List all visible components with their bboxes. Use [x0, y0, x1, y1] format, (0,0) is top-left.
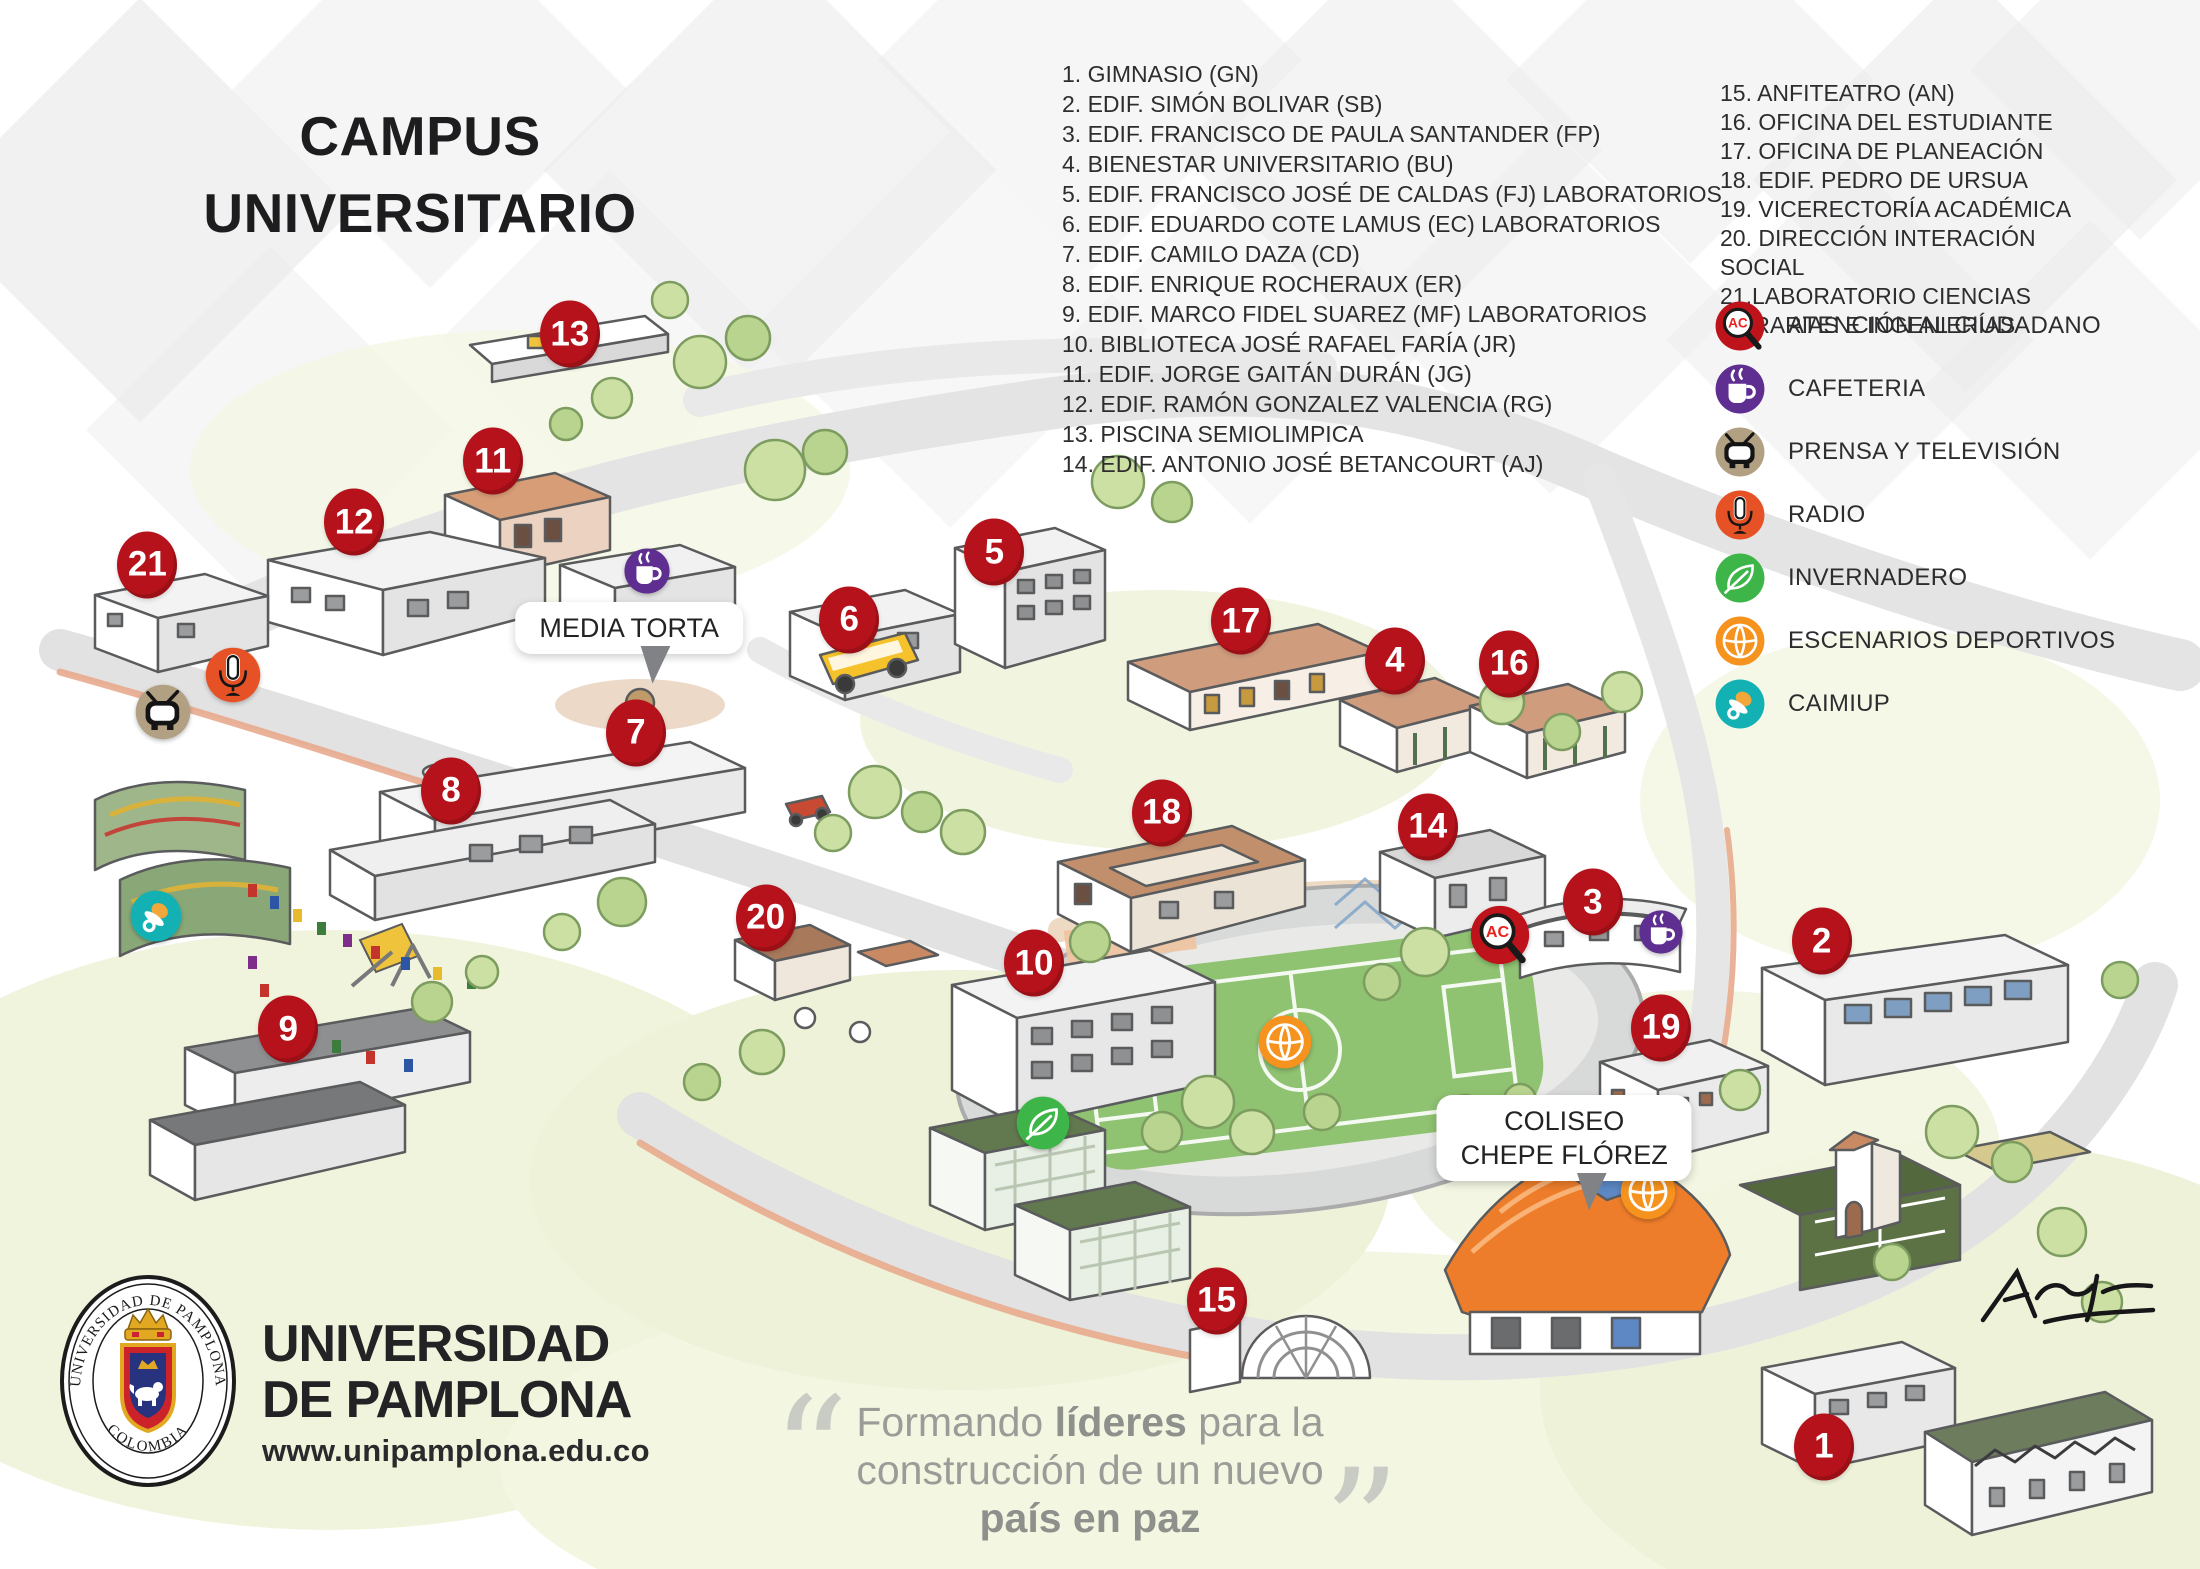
slogan-quote: “ Formando líderes para la construcción …: [800, 1398, 1380, 1542]
marker-number: 4: [1385, 641, 1404, 681]
wordmark-line1: UNIVERSIDAD: [262, 1316, 650, 1372]
artist-signature: [1975, 1258, 2165, 1338]
marker-number: 5: [985, 532, 1004, 572]
map-marker-6: 6: [819, 586, 879, 653]
map-marker-20: 20: [736, 884, 796, 951]
open-quote-mark: “: [772, 1378, 849, 1528]
marker-number: 12: [335, 502, 374, 542]
quote-line1: Formando líderes para la: [800, 1398, 1380, 1446]
marker-number: 6: [839, 600, 858, 640]
map-marker-4: 4: [1365, 627, 1425, 694]
map-marker-10: 10: [1004, 930, 1064, 997]
map-marker-16: 16: [1479, 630, 1539, 697]
map-marker-5: 5: [964, 519, 1024, 586]
marker-number: 9: [278, 1009, 297, 1049]
media-torta-label: MEDIA TORTA: [515, 602, 743, 654]
map-marker-17: 17: [1211, 588, 1271, 655]
marker-number: 1: [1814, 1427, 1833, 1467]
map-marker-15: 15: [1187, 1267, 1247, 1334]
map-marker-12: 12: [324, 489, 384, 556]
map-marker-19: 19: [1631, 994, 1691, 1061]
marker-number: 17: [1221, 601, 1260, 641]
map-marker-3: 3: [1563, 869, 1623, 936]
marker-number: 19: [1642, 1008, 1681, 1048]
marker-number: 2: [1812, 921, 1831, 961]
map-marker-11: 11: [463, 428, 523, 495]
marker-number: 18: [1142, 793, 1181, 833]
marker-number: 14: [1408, 807, 1447, 847]
map-marker-14: 14: [1398, 793, 1458, 860]
marker-number: 11: [474, 441, 511, 481]
university-seal: UNIVERSIDAD DE PAMPLONA COLOMBIA: [58, 1272, 238, 1490]
marker-number: 10: [1015, 943, 1054, 983]
map-marker-18: 18: [1132, 779, 1192, 846]
marker-number: 3: [1583, 882, 1602, 922]
marker-number: 15: [1197, 1281, 1236, 1321]
map-marker-8: 8: [421, 757, 481, 824]
campus-map-poster: CAMPUS UNIVERSITARIO 1. GIMNASIO (GN)2. …: [0, 0, 2200, 1569]
map-marker-2: 2: [1792, 908, 1852, 975]
marker-number: 13: [550, 314, 589, 354]
university-wordmark: UNIVERSIDAD DE PAMPLONA www.unipamplona.…: [262, 1316, 650, 1469]
marker-number: 20: [746, 898, 785, 938]
marker-number: 21: [128, 545, 167, 585]
close-quote-mark: ”: [1323, 1450, 1400, 1569]
coliseo-chepe-florez-label: COLISEO CHEPE FLÓREZ: [1437, 1095, 1692, 1181]
map-marker-13: 13: [540, 301, 600, 368]
quote-line2: construcción de un nuevo: [800, 1446, 1380, 1494]
map-marker-21: 21: [117, 531, 177, 598]
seal-shield: [122, 1345, 174, 1431]
university-website: www.unipamplona.edu.co: [262, 1433, 650, 1469]
marker-number: 7: [626, 713, 645, 753]
map-marker-1: 1: [1794, 1413, 1854, 1480]
quote-line3: país en paz: [800, 1494, 1380, 1542]
marker-number: 8: [441, 771, 460, 811]
map-marker-9: 9: [258, 996, 318, 1063]
map-marker-7: 7: [606, 699, 666, 766]
marker-number: 16: [1490, 644, 1529, 684]
wordmark-line2: DE PAMPLONA: [262, 1372, 650, 1428]
